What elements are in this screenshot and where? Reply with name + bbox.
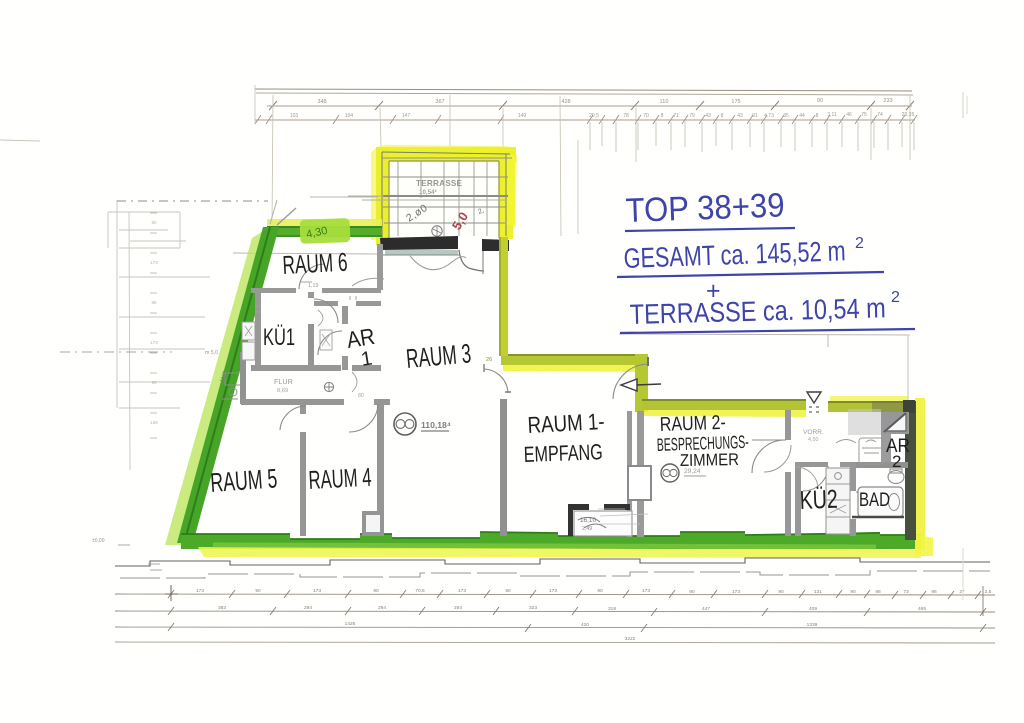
svg-text:1339: 1339: [807, 622, 818, 628]
svg-text:318: 318: [608, 606, 616, 612]
svg-text:2: 2: [891, 289, 900, 306]
svg-text:173: 173: [150, 340, 158, 345]
svg-text:90: 90: [505, 588, 511, 594]
svg-text:8: 8: [661, 113, 664, 119]
svg-text:90: 90: [151, 380, 157, 385]
svg-text:VORR.: VORR.: [803, 429, 824, 436]
svg-text:46: 46: [846, 112, 852, 118]
svg-text:±0,00: ±0,00: [92, 538, 105, 544]
svg-text:70: 70: [643, 113, 649, 119]
svg-text:149: 149: [518, 113, 527, 119]
svg-text:26: 26: [486, 357, 492, 363]
svg-text:90: 90: [597, 588, 603, 594]
svg-text:409: 409: [809, 606, 817, 612]
svg-text:BAD: BAD: [859, 490, 890, 511]
svg-text:173: 173: [642, 588, 650, 594]
svg-text:4,50: 4,50: [808, 437, 819, 443]
svg-text:m 5,0: m 5,0: [205, 350, 218, 356]
svg-text:2,49: 2,49: [582, 526, 592, 532]
svg-text:103: 103: [290, 113, 299, 119]
svg-text:1,19: 1,19: [308, 283, 319, 289]
svg-text:90: 90: [817, 98, 823, 104]
svg-text:KÜ1: KÜ1: [263, 324, 295, 351]
svg-text:2: 2: [892, 452, 901, 471]
svg-text:348: 348: [317, 99, 326, 105]
svg-text:TOP 38+39: TOP 38+39: [625, 186, 785, 230]
svg-text:131: 131: [814, 589, 822, 595]
svg-text:10,54²: 10,54²: [419, 189, 437, 196]
svg-text:173: 173: [458, 588, 466, 594]
svg-text:447: 447: [702, 606, 710, 612]
svg-text:43: 43: [705, 113, 711, 119]
svg-text:78: 78: [623, 113, 629, 119]
svg-text:43: 43: [737, 113, 743, 119]
svg-text:465: 465: [918, 606, 926, 612]
svg-text:3,11: 3,11: [827, 112, 837, 118]
svg-text:TERRASSE: TERRASSE: [416, 179, 463, 188]
svg-text:80: 80: [358, 393, 364, 399]
svg-text:29,35: 29,35: [902, 112, 915, 118]
svg-text:79: 79: [689, 113, 695, 119]
svg-text:8: 8: [816, 113, 819, 119]
svg-text:294: 294: [454, 605, 462, 611]
svg-text:27: 27: [959, 589, 965, 595]
svg-text:420: 420: [581, 622, 589, 628]
svg-text:RAUM 4: RAUM 4: [308, 462, 372, 495]
svg-text:96: 96: [931, 589, 937, 595]
svg-text:323: 323: [529, 605, 537, 611]
svg-text:71: 71: [673, 113, 679, 119]
svg-text:294: 294: [378, 605, 386, 611]
svg-text:294: 294: [304, 605, 312, 611]
svg-text:3222: 3222: [625, 636, 636, 642]
svg-text:90: 90: [850, 589, 856, 595]
svg-text:RAUM 6: RAUM 6: [282, 247, 348, 280]
svg-text:90: 90: [255, 588, 261, 594]
svg-text:74: 74: [877, 112, 883, 118]
svg-text:RAUM 5: RAUM 5: [209, 463, 278, 498]
svg-text:91: 91: [752, 113, 758, 119]
svg-text:367: 367: [435, 99, 444, 105]
svg-text:2,5: 2,5: [985, 589, 992, 595]
svg-text:88: 88: [151, 300, 157, 305]
svg-text:90: 90: [151, 220, 157, 225]
svg-text:8,69: 8,69: [277, 388, 288, 394]
svg-text:110: 110: [660, 99, 669, 105]
svg-text:90: 90: [373, 588, 379, 594]
svg-text:75: 75: [861, 112, 867, 118]
svg-text:173: 173: [313, 588, 321, 594]
svg-text:RAUM 1-: RAUM 1-: [527, 408, 605, 438]
svg-text:35: 35: [783, 113, 789, 119]
svg-text:44: 44: [799, 113, 805, 119]
svg-text:175: 175: [731, 99, 740, 105]
svg-text:KÜ2: KÜ2: [799, 484, 838, 515]
svg-text:FLUR: FLUR: [274, 377, 293, 386]
svg-text:73: 73: [903, 589, 909, 595]
svg-text:1426: 1426: [345, 621, 356, 627]
svg-text:110,18⁴: 110,18⁴: [421, 420, 451, 430]
svg-text:173: 173: [732, 589, 740, 595]
svg-text:RAUM 3: RAUM 3: [405, 338, 472, 374]
svg-text:2: 2: [855, 235, 864, 252]
svg-text:8: 8: [721, 113, 724, 119]
svg-text:147: 147: [402, 113, 411, 119]
svg-text:20,5: 20,5: [589, 113, 599, 119]
svg-text:233: 233: [883, 98, 892, 104]
svg-text:173: 173: [150, 260, 158, 265]
svg-text:104: 104: [345, 113, 354, 119]
svg-text:173: 173: [196, 588, 204, 594]
svg-text:16,10: 16,10: [580, 517, 596, 524]
svg-text:70,5: 70,5: [415, 588, 425, 594]
svg-text:EMPFANG: EMPFANG: [523, 439, 603, 467]
svg-text:90: 90: [689, 589, 695, 595]
svg-text:98: 98: [875, 589, 881, 595]
svg-text:428: 428: [561, 99, 570, 105]
svg-text:173: 173: [549, 588, 557, 594]
svg-text:ZIMMER: ZIMMER: [680, 450, 739, 470]
svg-text:168: 168: [150, 420, 158, 425]
svg-text:90: 90: [778, 589, 784, 595]
svg-text:383: 383: [218, 605, 226, 611]
svg-text:4,73: 4,73: [764, 113, 774, 119]
